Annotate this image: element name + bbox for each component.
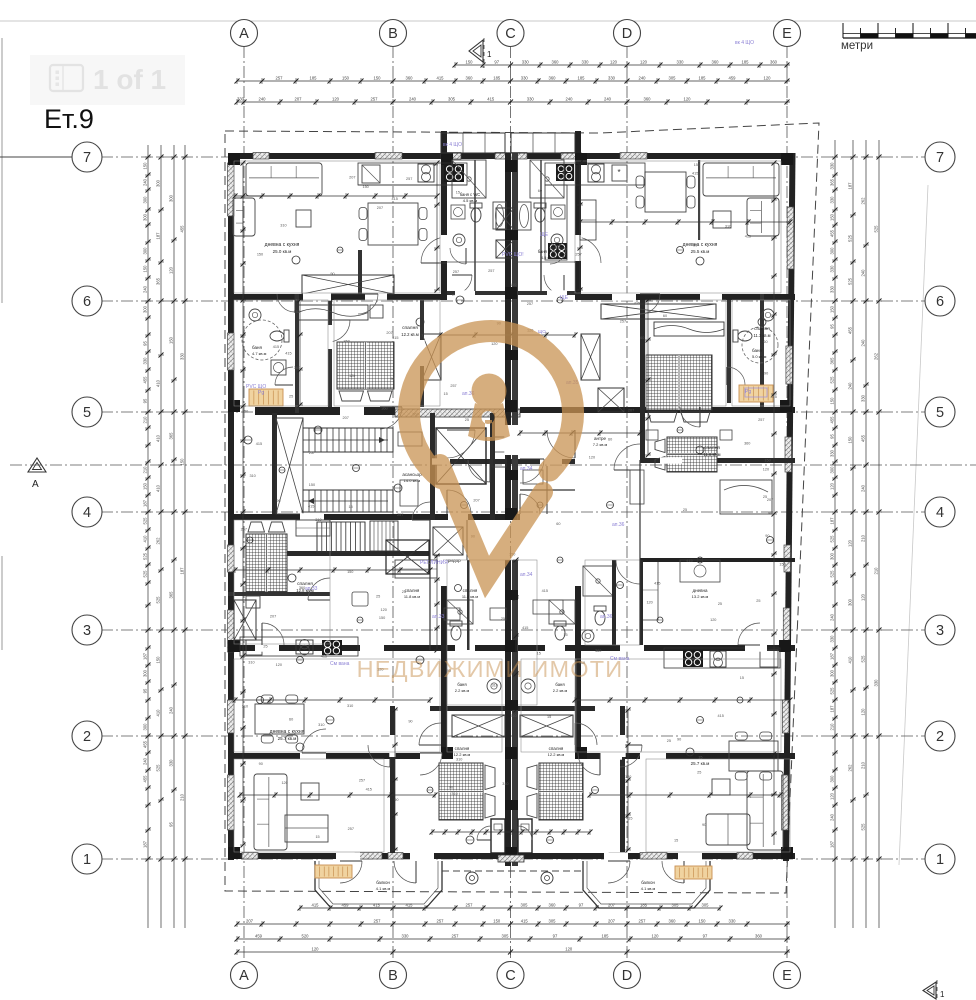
svg-text:120: 120 [830,482,835,490]
svg-text:410: 410 [848,656,853,664]
svg-text:150: 150 [347,570,353,574]
svg-text:120: 120 [848,539,853,547]
svg-text:415: 415 [308,504,314,508]
svg-text:НЕДВИЖИМИ ИМОТИ: НЕДВИЖИМИ ИМОТИ [357,656,624,682]
svg-text:415: 415 [542,589,548,593]
svg-text:25: 25 [263,644,267,648]
svg-text:90: 90 [765,534,769,538]
svg-text:415: 415 [654,582,660,586]
svg-text:330: 330 [180,352,185,360]
svg-text:11.8 кв.м: 11.8 кв.м [703,452,720,457]
svg-text:240: 240 [830,813,835,821]
svg-text:310: 310 [347,704,353,708]
svg-text:97: 97 [703,934,708,939]
svg-text:120: 120 [332,97,340,102]
svg-text:185: 185 [602,934,610,939]
svg-text:310: 310 [318,723,324,727]
svg-text:ап.33: ап.33 [305,586,318,592]
svg-text:13.2 кв.м: 13.2 кв.м [692,594,709,599]
svg-text:240: 240 [143,178,148,186]
svg-text:459: 459 [255,934,263,939]
svg-text:120: 120 [763,468,769,472]
svg-text:187: 187 [848,182,853,190]
svg-text:240: 240 [143,285,148,293]
svg-text:300: 300 [143,305,148,313]
svg-text:207: 207 [295,97,303,102]
svg-text:5: 5 [83,405,91,421]
svg-text:410: 410 [156,379,161,387]
svg-text:150: 150 [156,656,161,664]
svg-text:187: 187 [143,499,148,507]
svg-text:5.0 кв.м: 5.0 кв.м [752,354,767,359]
svg-text:120: 120 [684,97,692,102]
svg-text:257: 257 [575,253,581,257]
svg-text:150: 150 [379,616,385,620]
svg-text:150: 150 [510,283,516,287]
svg-text:210: 210 [143,466,148,474]
svg-text:*: * [617,168,620,177]
svg-text:12.2 кв.м: 12.2 кв.м [454,752,471,757]
svg-text:257: 257 [639,919,647,924]
svg-text:15: 15 [537,651,541,655]
svg-text:525: 525 [830,376,835,384]
svg-text:187: 187 [143,840,148,848]
svg-text:95: 95 [143,688,148,693]
svg-text:120: 120 [625,775,631,779]
svg-text:300: 300 [169,194,174,202]
svg-text:90: 90 [677,737,681,741]
svg-text:415: 415 [312,903,320,908]
svg-text:25.0 кв.м: 25.0 кв.м [273,249,292,254]
svg-text:455: 455 [143,376,148,384]
svg-text:60: 60 [556,522,560,526]
svg-text:ап.34: ап.34 [520,572,533,578]
svg-text:525: 525 [874,225,879,233]
svg-text:120: 120 [491,342,497,346]
svg-text:дневна с кухня: дневна с кухня [683,242,718,248]
svg-text:240: 240 [848,382,853,390]
svg-text:257: 257 [758,418,764,422]
svg-text:метри: метри [841,40,873,52]
svg-text:310: 310 [725,225,731,229]
svg-text:257: 257 [348,827,354,831]
svg-text:баня: баня [252,345,262,350]
svg-text:300: 300 [156,179,161,187]
svg-text:5: 5 [936,405,944,421]
svg-text:415: 415 [392,197,398,201]
svg-text:150: 150 [242,410,248,414]
svg-text:баня с WC: баня с WC [460,192,481,197]
svg-text:459: 459 [729,76,737,81]
svg-text:330: 330 [729,919,737,924]
svg-text:1 of 1: 1 of 1 [93,64,166,95]
svg-text:Pg: Pg [258,390,264,396]
svg-text:240: 240 [259,97,267,102]
svg-text:7: 7 [83,150,91,166]
svg-text:415: 415 [321,654,327,658]
svg-text:150: 150 [143,162,148,170]
svg-text:207: 207 [270,614,276,618]
svg-text:антре: антре [594,436,607,441]
svg-text:60: 60 [763,340,767,344]
svg-text:330: 330 [527,97,535,102]
svg-text:ап.34: ап.34 [520,466,533,472]
svg-text:120: 120 [380,608,386,612]
svg-text:330: 330 [677,60,685,65]
svg-text:257: 257 [359,778,365,782]
svg-text:D: D [622,26,632,42]
svg-text:25: 25 [465,418,469,422]
svg-text:баня: баня [457,682,466,687]
svg-text:спалня: спалня [455,746,470,751]
svg-text:ап.33: ап.33 [432,614,445,620]
svg-text:310: 310 [502,782,508,786]
svg-text:210: 210 [180,793,185,801]
svg-text:525: 525 [848,234,853,242]
svg-text:спалня: спалня [754,327,770,332]
svg-text:305: 305 [549,919,557,924]
svg-text:240: 240 [830,613,835,621]
svg-text:60: 60 [538,189,542,193]
svg-text:120: 120 [610,60,618,65]
svg-text:25: 25 [718,602,722,606]
svg-text:1: 1 [940,990,945,999]
svg-text:257: 257 [437,919,445,924]
svg-text:455: 455 [180,225,185,233]
svg-text:210: 210 [861,761,866,769]
svg-text:240: 240 [861,339,866,347]
svg-text:525: 525 [143,517,148,525]
svg-text:415: 415 [373,903,381,908]
svg-text:B: B [388,968,398,984]
svg-text:E: E [782,26,792,42]
svg-text:187: 187 [830,652,835,660]
svg-text:150: 150 [848,436,853,444]
svg-text:15: 15 [456,190,460,194]
svg-text:525: 525 [848,277,853,285]
svg-text:257: 257 [276,76,284,81]
svg-text:187: 187 [156,232,161,240]
svg-text:455: 455 [143,775,148,783]
svg-text:257: 257 [241,527,247,531]
svg-text:310: 310 [492,684,498,688]
svg-text:3: 3 [83,623,91,639]
svg-text:525: 525 [143,570,148,578]
svg-text:415: 415 [745,234,751,238]
svg-text:257: 257 [406,177,412,181]
svg-text:257: 257 [309,451,315,455]
svg-text:150: 150 [493,919,501,924]
svg-text:1: 1 [936,852,944,868]
svg-text:240: 240 [639,76,647,81]
svg-text:525: 525 [861,823,866,831]
svg-text:15: 15 [349,505,353,509]
svg-text:спалня: спалня [402,326,418,331]
svg-text:4: 4 [83,505,91,521]
svg-text:15: 15 [444,392,448,396]
svg-text:120: 120 [565,947,573,952]
svg-text:262: 262 [861,197,866,205]
svg-text:410: 410 [143,535,148,543]
svg-text:15: 15 [563,633,567,637]
svg-text:207: 207 [433,163,439,167]
svg-text:1: 1 [83,852,91,868]
svg-text:150: 150 [830,213,835,221]
svg-text:120: 120 [646,600,652,604]
svg-text:455: 455 [143,740,148,748]
svg-text:330: 330 [830,162,835,170]
svg-text:балкон: балкон [641,880,655,885]
svg-text:95: 95 [143,341,148,346]
svg-text:310: 310 [248,660,254,664]
svg-text:150: 150 [764,459,770,463]
svg-text:C: C [505,968,515,984]
svg-text:1: 1 [487,50,492,59]
svg-text:300: 300 [830,466,835,474]
svg-text:415: 415 [256,442,262,446]
svg-text:ап.36: ап.36 [612,522,625,528]
svg-text:вк 4 ЩО: вк 4 ЩО [443,142,462,148]
svg-text:257: 257 [397,513,403,517]
svg-text:360: 360 [669,919,677,924]
svg-text:15: 15 [698,756,702,760]
svg-text:210: 210 [874,567,879,575]
svg-text:150: 150 [374,76,382,81]
svg-text:150: 150 [830,397,835,405]
svg-text:410: 410 [156,709,161,717]
svg-text:257: 257 [453,270,459,274]
svg-text:90: 90 [768,512,772,516]
svg-text:150: 150 [699,919,707,924]
svg-text:257: 257 [374,919,382,924]
svg-text:525: 525 [830,687,835,695]
svg-text:360: 360 [755,934,763,939]
svg-text:2.2 кв.м: 2.2 кв.м [553,688,568,693]
svg-text:E: E [782,968,792,984]
svg-text:360: 360 [595,649,601,653]
svg-text:90: 90 [449,785,453,789]
svg-text:330: 330 [830,285,835,293]
svg-text:360: 360 [549,903,557,908]
svg-text:150: 150 [466,60,474,65]
svg-text:4.7 кв.м: 4.7 кв.м [252,351,267,356]
svg-text:120: 120 [349,374,355,378]
svg-text:415: 415 [718,714,724,718]
svg-text:асансьор: асансьор [402,472,422,477]
svg-text:спалня: спалня [463,588,478,593]
svg-text:455: 455 [861,434,866,442]
svg-text:150: 150 [779,563,785,567]
svg-text:207: 207 [608,919,616,924]
svg-text:185: 185 [640,903,648,908]
svg-text:12.2 кв.м: 12.2 кв.м [401,332,419,337]
svg-text:257: 257 [527,302,533,306]
svg-text:360: 360 [406,76,414,81]
svg-text:балкон: балкон [376,880,390,885]
svg-text:12.2 кв.м: 12.2 кв.м [548,752,565,757]
svg-text:11.8 кв.м: 11.8 кв.м [462,594,479,599]
svg-text:330: 330 [830,635,835,643]
svg-text:330: 330 [830,265,835,273]
svg-text:А: А [32,479,39,490]
svg-text:187: 187 [180,567,185,575]
svg-text:310: 310 [451,792,457,796]
svg-text:410: 410 [156,434,161,442]
svg-text:11.8 кв.м: 11.8 кв.м [404,594,421,599]
svg-text:365: 365 [830,357,835,365]
svg-text:310: 310 [315,518,321,522]
svg-text:257: 257 [371,97,379,102]
svg-text:360: 360 [294,366,300,370]
svg-text:120: 120 [830,792,835,800]
svg-text:25: 25 [763,495,767,499]
svg-text:ЩЕ: ЩЕ [540,232,549,238]
svg-text:300: 300 [848,598,853,606]
svg-text:120: 120 [169,266,174,274]
svg-text:305: 305 [702,903,710,908]
svg-text:360: 360 [712,60,720,65]
svg-text:дневна с кухня: дневна с кухня [270,729,305,735]
svg-text:455: 455 [848,326,853,334]
svg-text:120: 120 [276,663,282,667]
svg-text:187: 187 [830,840,835,848]
svg-text:330: 330 [874,679,879,687]
svg-text:240: 240 [861,269,866,277]
svg-text:90: 90 [764,371,768,375]
svg-text:210: 210 [830,723,835,731]
svg-text:дневна с кухня: дневна с кухня [265,242,300,248]
svg-text:525: 525 [143,552,148,560]
svg-text:310: 310 [249,474,255,478]
svg-text:150: 150 [342,76,350,81]
svg-text:360: 360 [549,76,557,81]
svg-text:305: 305 [502,934,510,939]
svg-text:365: 365 [169,432,174,440]
svg-text:95: 95 [830,324,835,329]
svg-text:415: 415 [273,345,279,349]
svg-text:330: 330 [582,60,590,65]
svg-text:520: 520 [302,934,310,939]
svg-text:415: 415 [771,395,777,399]
svg-text:262: 262 [156,537,161,545]
svg-text:305: 305 [672,903,680,908]
svg-text:415: 415 [487,97,495,102]
svg-text:415: 415 [406,903,414,908]
svg-text:240: 240 [566,97,574,102]
svg-text:455: 455 [830,229,835,237]
svg-text:415: 415 [692,172,698,176]
svg-text:185: 185 [493,76,501,81]
svg-text:15: 15 [547,715,551,719]
svg-text:300: 300 [143,669,148,677]
svg-text:4.1 кв.м: 4.1 кв.м [376,886,391,891]
svg-text:262: 262 [874,352,879,360]
svg-text:365: 365 [156,277,161,285]
svg-text:360: 360 [770,60,778,65]
svg-text:330: 330 [521,76,529,81]
svg-text:207: 207 [386,331,392,335]
svg-text:25: 25 [402,590,406,594]
svg-text:ЩО: ЩО [538,329,546,334]
svg-text:300: 300 [143,196,148,204]
svg-text:11.3 кв.м: 11.3 кв.м [753,333,770,338]
svg-text:спалня: спалня [405,588,420,593]
svg-text:240: 240 [169,706,174,714]
svg-text:2: 2 [83,729,91,745]
svg-text:415: 415 [521,919,529,924]
svg-text:207: 207 [377,206,383,210]
svg-text:360: 360 [744,441,750,445]
svg-text:305: 305 [448,97,456,102]
svg-text:баня: баня [752,348,762,353]
svg-text:365: 365 [830,178,835,186]
svg-text:455: 455 [830,416,835,424]
svg-text:25: 25 [756,599,760,603]
svg-text:207: 207 [473,499,479,503]
svg-text:60: 60 [608,438,612,442]
svg-text:415: 415 [285,352,291,356]
svg-text:15: 15 [674,838,678,842]
svg-text:525: 525 [156,764,161,772]
svg-text:РЕГ.ЛИНИЯ: РЕГ.ЛИНИЯ [420,560,448,566]
svg-text:185: 185 [578,76,586,81]
svg-text:См вана: См вана [330,661,350,667]
svg-text:207: 207 [628,408,634,412]
svg-text:6: 6 [83,294,91,310]
svg-text:185: 185 [310,76,318,81]
svg-text:262: 262 [848,764,853,772]
svg-text:ап.36: ап.36 [600,614,613,620]
svg-text:187: 187 [830,517,835,525]
svg-text:15: 15 [740,676,744,680]
svg-text:3: 3 [936,623,944,639]
svg-text:207: 207 [246,919,254,924]
svg-text:A: A [239,26,249,42]
svg-text:2.2 кв.м: 2.2 кв.м [455,688,470,693]
svg-text:310: 310 [456,757,462,761]
svg-text:97: 97 [553,934,558,939]
svg-text:баня: баня [555,682,564,687]
svg-text:310: 310 [510,714,516,718]
svg-text:300: 300 [143,247,148,255]
svg-text:120: 120 [640,60,648,65]
svg-text:257: 257 [620,319,626,323]
svg-text:6: 6 [936,294,944,310]
svg-text:120: 120 [861,593,866,601]
svg-text:120: 120 [312,947,320,952]
svg-text:вк 4 ЩО: вк 4 ЩО [735,40,754,46]
svg-text:300: 300 [830,247,835,255]
svg-text:PVC ЩО!: PVC ЩО! [502,252,524,258]
svg-text:300: 300 [830,669,835,677]
svg-text:90: 90 [408,720,412,724]
svg-text:25.7 кв.м: 25.7 кв.м [278,736,297,741]
svg-text:257: 257 [488,269,494,273]
svg-text:120: 120 [589,456,595,460]
svg-text:185: 185 [742,60,750,65]
svg-text:210: 210 [861,534,866,542]
svg-text:150: 150 [309,483,315,487]
svg-text:207: 207 [343,416,349,420]
svg-text:257: 257 [450,384,456,388]
svg-text:15: 15 [315,835,319,839]
svg-text:207: 207 [767,498,773,502]
svg-text:60: 60 [640,336,644,340]
svg-text:C: C [505,26,515,42]
svg-text:415: 415 [366,788,372,792]
svg-text:360: 360 [344,339,350,343]
svg-text:25: 25 [501,617,505,621]
